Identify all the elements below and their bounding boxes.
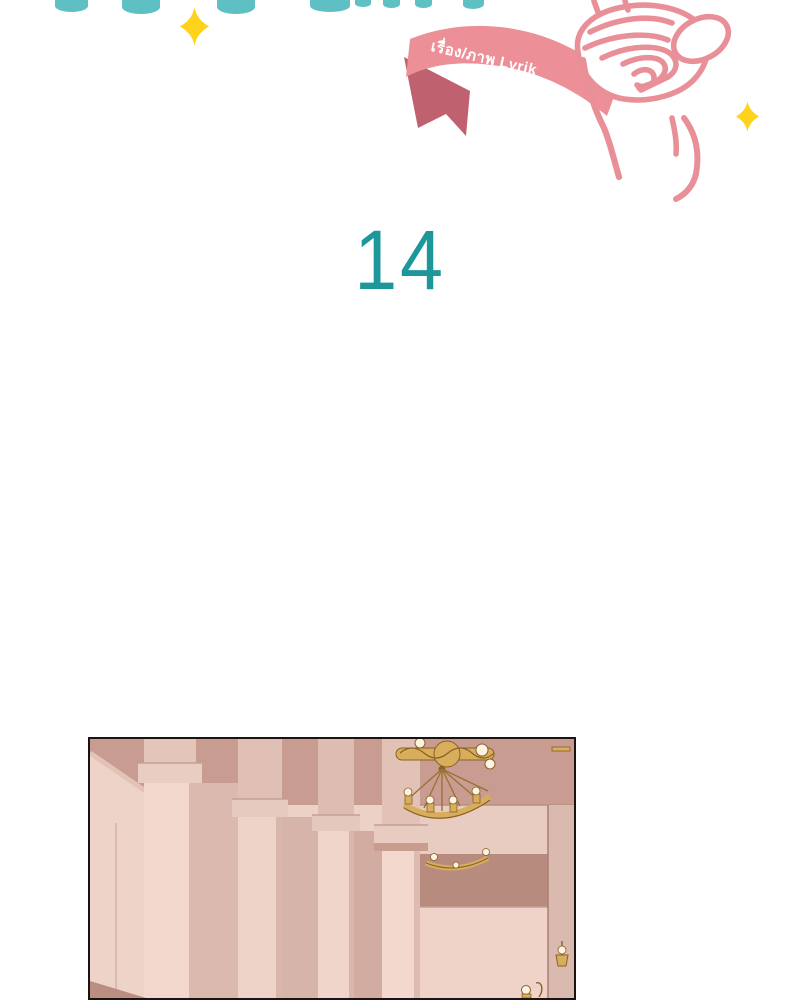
pilaster [374, 739, 428, 998]
pilaster [312, 739, 360, 998]
pilaster [138, 739, 202, 998]
webtoon-page: { "header": { "title_note": "", "credit_… [0, 0, 800, 1000]
hallway-illustration [90, 739, 574, 998]
comic-panel [88, 737, 576, 1000]
pilaster [232, 739, 288, 998]
lower-wall [420, 907, 548, 998]
finger-heart-icon [550, 0, 800, 210]
chapter-number: 14 [32, 218, 768, 302]
gold-moulding [552, 747, 570, 751]
